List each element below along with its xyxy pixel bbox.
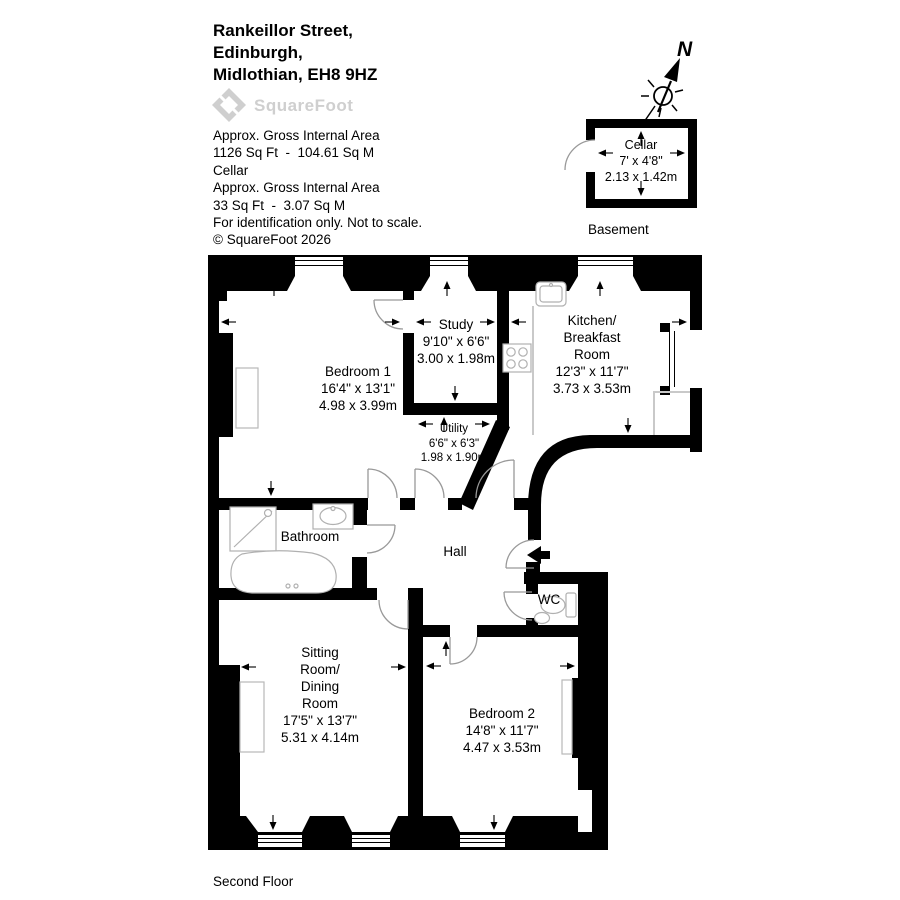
cellar-area-label: Approx. Gross Internal Area: [213, 179, 422, 196]
room-label-bedroom2: Bedroom 2 14'8" x 11'7" 4.47 x 3.53m: [463, 705, 541, 756]
room-label-sitting-room: Sitting Room/ Dining Room 17'5" x 13'7" …: [281, 644, 359, 746]
disclaimer: For identification only. Not to scale.: [213, 214, 422, 231]
second-floor-caption: Second Floor: [213, 874, 293, 889]
copyright: © SquareFoot 2026: [213, 231, 422, 248]
compass-north-icon: N: [641, 38, 693, 122]
room-label-study: Study 9'10" x 6'6" 3.00 x 1.98m: [417, 316, 495, 367]
gross-area-value: 1126 Sq Ft - 104.61 Sq M: [213, 144, 422, 161]
basement-caption: Basement: [588, 222, 649, 237]
entry-arrow-icon: [527, 546, 550, 564]
address-line-1: Rankeillor Street,: [213, 20, 377, 42]
bathroom-fixtures: [230, 504, 353, 593]
cellar-area-sublabel: Cellar: [213, 162, 422, 179]
address-line-2: Edinburgh,: [213, 42, 377, 64]
squarefoot-logo-text: SquareFoot: [254, 96, 353, 116]
room-label-wc: WC: [538, 591, 561, 608]
room-label-utility: Utility 6'6" x 6'3" 1.98 x 1.90m: [421, 422, 487, 466]
area-summary: Approx. Gross Internal Area 1126 Sq Ft -…: [213, 127, 422, 249]
gross-area-label: Approx. Gross Internal Area: [213, 127, 422, 144]
cellar-area-value: 33 Sq Ft - 3.07 Sq M: [213, 197, 422, 214]
floorplan-page: { "header": { "address_line1": "Rankeill…: [0, 0, 900, 900]
address-line-3: Midlothian, EH8 9HZ: [213, 64, 377, 86]
room-label-kitchen: Kitchen/ Breakfast Room 12'3" x 11'7" 3.…: [553, 312, 631, 397]
room-label-cellar: Cellar 7' x 4'8" 2.13 x 1.42m: [605, 137, 677, 185]
compass-north-label: N: [677, 38, 693, 61]
room-label-bathroom: Bathroom: [281, 528, 340, 545]
property-address: Rankeillor Street, Edinburgh, Midlothian…: [213, 20, 377, 86]
squarefoot-logo-icon: [210, 85, 250, 125]
room-label-hall: Hall: [443, 543, 466, 560]
room-label-bedroom1: Bedroom 1 16'4" x 13'1" 4.98 x 3.99m: [319, 363, 397, 414]
